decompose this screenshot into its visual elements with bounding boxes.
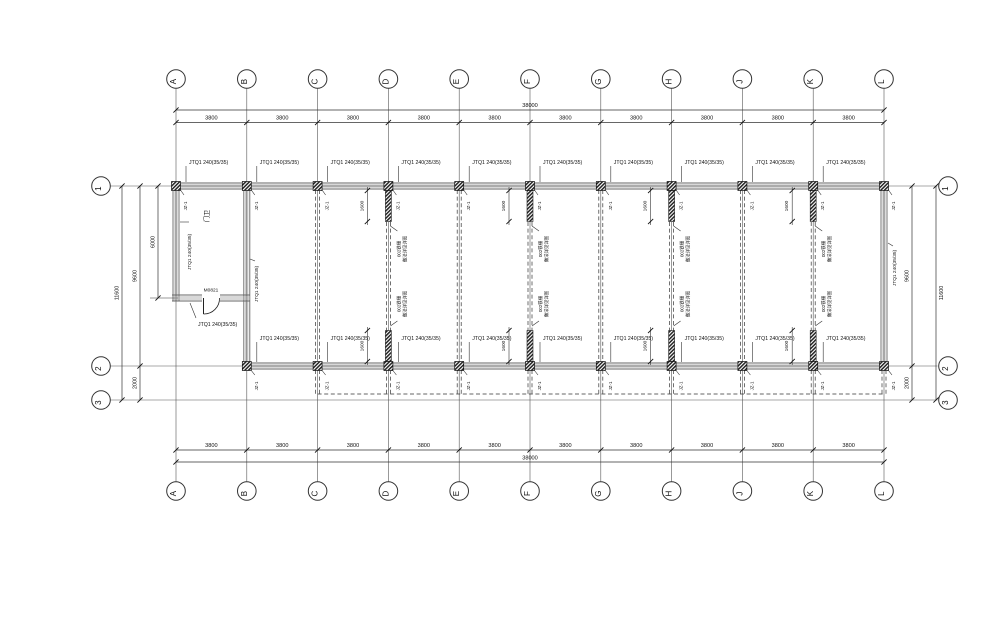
wall-tag-room-left: JTQ1 240(35/35) xyxy=(187,233,193,270)
column-block-row1-C xyxy=(313,182,322,191)
note-leader xyxy=(815,321,822,326)
grille-note-2: 做法详见详图 xyxy=(401,235,408,262)
column-tag-row2: JZ-1 xyxy=(325,381,330,390)
wall-tag-row1: JTQ1 240(35/35) xyxy=(685,160,724,166)
grid-bubble-top-J-circle xyxy=(733,70,752,89)
column-block-row1-J xyxy=(738,182,747,191)
tag-leader xyxy=(464,190,468,195)
tag-leader xyxy=(818,190,822,195)
dim-grille-length: 1600 xyxy=(359,200,365,211)
column-tag-row2: JZ-1 xyxy=(820,381,825,390)
grid-bubble-left-1-circle xyxy=(92,177,111,196)
tag-leader xyxy=(535,371,539,376)
grid-bubble-bottom-F-label: F xyxy=(523,491,532,496)
grid-bubble-bottom-H-label: H xyxy=(665,490,674,496)
column-block-row2-B xyxy=(242,362,251,371)
grid-bubble-bottom-D-label: D xyxy=(381,490,390,496)
tag-leader xyxy=(251,190,255,195)
grid-bubble-bottom-F-circle xyxy=(521,482,540,501)
grille-note-1: 002铁栅 xyxy=(537,295,544,312)
column-block-row2-H xyxy=(667,362,676,371)
grid-bubble-left-2-label: 2 xyxy=(94,366,103,371)
wall-tag-row2: JTQ1 240(35/35) xyxy=(472,336,511,342)
grille-note-1: 002铁栅 xyxy=(395,295,402,312)
grid-bubble-right-2-circle xyxy=(939,357,958,376)
grid-bubble-right-1-label: 1 xyxy=(941,186,950,191)
tag-leader xyxy=(251,371,255,376)
grille-stub-bottom xyxy=(669,331,675,362)
dim-bay-bottom: 3800 xyxy=(772,443,784,449)
grille-stub-top xyxy=(810,191,816,222)
grid-bubble-right-1-circle xyxy=(939,177,958,196)
dim-bay-top: 3800 xyxy=(701,116,713,122)
dim-bay-bottom: 3800 xyxy=(701,443,713,449)
grid-bubble-right-2-label: 2 xyxy=(941,366,950,371)
tag-leader xyxy=(605,190,609,195)
column-block-row1-D xyxy=(384,182,393,191)
room-name: 门卫 xyxy=(203,210,211,222)
wall-tag-row1: JTQ1 240(35/35) xyxy=(401,160,440,166)
grid-bubble-bottom-B-label: B xyxy=(240,491,249,496)
column-tag-row2: JZ-1 xyxy=(395,381,400,390)
tag-leader xyxy=(818,371,822,376)
grille-note-2: 做法详见详图 xyxy=(685,290,692,317)
dim-bay-top: 3800 xyxy=(418,116,430,122)
column-tag-row1: JZ-1 xyxy=(395,201,400,210)
column-tag-row2: JZ-1 xyxy=(254,381,259,390)
grille-note-1: 002铁栅 xyxy=(820,240,827,257)
door-tag: M0821 xyxy=(204,288,219,294)
dim-bay-bottom: 3800 xyxy=(842,443,854,449)
grille-note-2: 做法详见详图 xyxy=(401,290,408,317)
column-block-row2-D xyxy=(384,362,393,371)
tag-leader xyxy=(605,371,609,376)
grid-bubble-right-3-circle xyxy=(939,391,958,410)
column-block-row2-J xyxy=(738,362,747,371)
grid-bubble-top-C-label: C xyxy=(311,78,320,84)
grille-stub-top xyxy=(527,191,533,222)
grid-bubble-top-H-label: H xyxy=(665,78,674,84)
column-block-row1-K xyxy=(809,182,818,191)
floor-plan-canvas: AABBCCDDEEFFGGHHJJKKLL112233380003800380… xyxy=(0,0,992,638)
column-tag-row2: JZ-1 xyxy=(466,381,471,390)
column-tag-row2: JZ-1 xyxy=(679,381,684,390)
grid-bubble-bottom-C-label: C xyxy=(311,490,320,496)
grid-bubble-bottom-K-label: K xyxy=(806,490,815,496)
grille-note-1: 002铁栅 xyxy=(395,240,402,257)
wall-tag-row2: JTQ1 240(35/35) xyxy=(755,336,794,342)
wall-tag-row1: JTQ1 240(35/35) xyxy=(826,160,865,166)
dim-total-width-top: 38000 xyxy=(522,103,538,109)
wall-tag-row1: JTQ1 240(35/35) xyxy=(543,160,582,166)
tag-leader xyxy=(322,190,326,195)
note-leader xyxy=(532,226,539,231)
dim-bay-bottom: 3800 xyxy=(205,443,217,449)
note-leader xyxy=(815,226,822,231)
column-tag-row2: JZ-1 xyxy=(749,381,754,390)
grid-bubble-top-K-label: K xyxy=(806,78,815,84)
tag-leader xyxy=(676,190,680,195)
grille-note-2: 做法详见详图 xyxy=(685,235,692,262)
dim-bay-top: 3800 xyxy=(842,116,854,122)
wall-tag-room-right: JTQ1 240(35/35) xyxy=(254,265,260,302)
column-tag-row1: JZ-1 xyxy=(254,201,259,210)
dim-bay-top: 3800 xyxy=(347,116,359,122)
grid-bubble-left-1-label: 1 xyxy=(94,186,103,191)
column-block-row2-K xyxy=(809,362,818,371)
column-block-row1-G xyxy=(596,182,605,191)
note-leader xyxy=(390,321,397,326)
column-block-row1-E xyxy=(455,182,464,191)
grid-bubble-top-D-label: D xyxy=(381,78,390,84)
dim-bay-top: 3800 xyxy=(205,116,217,122)
grid-bubble-bottom-L-label: L xyxy=(877,491,886,496)
dim-bay-bottom: 3800 xyxy=(559,443,571,449)
dim-bay-bottom: 3800 xyxy=(347,443,359,449)
wall-tag-row2: JTQ1 240(35/35) xyxy=(614,336,653,342)
grid-bubble-bottom-J-label: J xyxy=(735,492,744,496)
grille-note-1: 002铁栅 xyxy=(537,240,544,257)
grid-bubble-top-L-label: L xyxy=(877,79,886,84)
grid-bubble-bottom-G-label: G xyxy=(594,490,603,496)
dim-total-height-right: 11600 xyxy=(939,286,945,301)
tag-leader xyxy=(393,371,397,376)
column-tag-row1: JZ-1 xyxy=(537,201,542,210)
grid-bubble-top-A-label: A xyxy=(169,78,178,84)
grid-bubble-top-J-label: J xyxy=(735,80,744,84)
dim-grille-length: 1600 xyxy=(784,200,790,211)
grid-bubble-top-B-label: B xyxy=(240,79,249,84)
grille-note-2: 做法详见详图 xyxy=(543,290,550,317)
tag-leader xyxy=(393,190,397,195)
wall-tag-row2: JTQ1 240(35/35) xyxy=(331,336,370,342)
tag-leader xyxy=(889,371,893,376)
wall-tag-row2: JTQ1 240(35/35) xyxy=(260,336,299,342)
dim-grille-length: 1600 xyxy=(643,200,649,211)
dim-bay-bottom: 3800 xyxy=(276,443,288,449)
column-tag-row2: JZ-1 xyxy=(608,381,613,390)
wall-tag-row2: JTQ1 240(35/35) xyxy=(543,336,582,342)
tag-leader xyxy=(535,190,539,195)
dim-bay-bottom: 3800 xyxy=(630,443,642,449)
wall-tag-row1: JTQ1 240(35/35) xyxy=(260,160,299,166)
wall-tag-row1: JTQ1 240(35/35) xyxy=(472,160,511,166)
grid-bubble-top-E-label: E xyxy=(452,79,461,84)
column-tag-row1: JZ-1 xyxy=(183,201,188,210)
tag-leader xyxy=(747,371,751,376)
grid-bubble-bottom-L-circle xyxy=(875,482,894,501)
dim-total-width-bottom: 38000 xyxy=(522,456,538,462)
tag-leader xyxy=(250,259,255,261)
wall-tag-row2: JTQ1 240(35/35) xyxy=(401,336,440,342)
dim-bay-bottom: 3800 xyxy=(488,443,500,449)
wall-tag-row2: JTQ1 240(35/35) xyxy=(685,336,724,342)
grille-stub-bottom xyxy=(385,331,391,362)
tag-leader xyxy=(322,371,326,376)
column-block-row2-L xyxy=(880,362,889,371)
column-tag-row1: JZ-1 xyxy=(820,201,825,210)
dim-bay-top: 3800 xyxy=(488,116,500,122)
grille-stub-top xyxy=(385,191,391,222)
column-tag-row2: JZ-1 xyxy=(537,381,542,390)
tag-leader xyxy=(464,371,468,376)
grille-note-1: 002铁栅 xyxy=(679,295,686,312)
grille-stub-bottom xyxy=(527,331,533,362)
wall-tag-row1: JTQ1 240(35/35) xyxy=(755,160,794,166)
door-swing-arc xyxy=(204,298,220,314)
wall-tag-row1: JTQ1 240(35/35) xyxy=(614,160,653,166)
dim-bay-top: 3800 xyxy=(772,116,784,122)
grille-note-2: 做法详见详图 xyxy=(826,290,833,317)
column-tag-row1: JZ-1 xyxy=(749,201,754,210)
grid-bubble-top-L-circle xyxy=(875,70,894,89)
grid-bubble-bottom-E-label: E xyxy=(452,491,461,496)
grille-stub-top xyxy=(669,191,675,222)
tag-leader xyxy=(888,243,893,246)
wall-tag-row1: JTQ1 240(35/35) xyxy=(189,160,228,166)
column-block-row1-L xyxy=(880,182,889,191)
column-tag-row1: JZ-1 xyxy=(891,201,896,210)
column-block-row2-E xyxy=(455,362,464,371)
note-leader xyxy=(674,226,681,231)
grid-bubble-bottom-J-circle xyxy=(733,482,752,501)
dim-2000-right: 2000 xyxy=(905,377,911,389)
column-tag-row1: JZ-1 xyxy=(466,201,471,210)
column-tag-row1: JZ-1 xyxy=(325,201,330,210)
grille-note-1: 002铁栅 xyxy=(679,240,686,257)
column-block-row2-G xyxy=(596,362,605,371)
wall-tag-row2: JTQ1 240(35/35) xyxy=(826,336,865,342)
column-tag-row1: JZ-1 xyxy=(679,201,684,210)
dim-9600-left: 9600 xyxy=(133,270,139,282)
dim-room-depth: 6000 xyxy=(151,236,157,248)
column-tag-row2: JZ-1 xyxy=(891,381,896,390)
grid-bubble-left-2-circle xyxy=(92,357,111,376)
column-block-row1-A xyxy=(172,182,181,191)
grid-bubble-right-3-label: 3 xyxy=(941,400,950,405)
dim-bay-top: 3800 xyxy=(276,116,288,122)
grid-bubble-left-3-circle xyxy=(92,391,111,410)
cad-floor-plan-page: AABBCCDDEEFFGGHHJJKKLL112233380003800380… xyxy=(0,0,992,638)
grille-note-1: 002铁栅 xyxy=(820,295,827,312)
tag-leader xyxy=(889,190,893,195)
column-block-row1-H xyxy=(667,182,676,191)
dim-grille-length: 1600 xyxy=(501,200,507,211)
wall-tag-row1: JTQ1 240(35/35) xyxy=(331,160,370,166)
column-block-row1-F xyxy=(526,182,535,191)
dim-total-height-left: 11600 xyxy=(115,286,121,301)
note-leader xyxy=(674,321,681,326)
column-block-row2-F xyxy=(526,362,535,371)
grid-bubble-left-3-label: 3 xyxy=(94,400,103,405)
column-tag-row1: JZ-1 xyxy=(608,201,613,210)
dim-bay-top: 3800 xyxy=(630,116,642,122)
tag-leader xyxy=(676,371,680,376)
grid-bubble-bottom-A-label: A xyxy=(169,490,178,496)
grille-note-2: 做法详见详图 xyxy=(543,235,550,262)
note-leader xyxy=(390,226,397,231)
tag-leader xyxy=(747,190,751,195)
grid-bubble-top-F-label: F xyxy=(523,79,532,84)
grille-stub-bottom xyxy=(810,331,816,362)
column-block-row2-C xyxy=(313,362,322,371)
tag-leader xyxy=(190,303,196,318)
grid-bubble-top-G-label: G xyxy=(594,78,603,84)
dim-9600-right: 9600 xyxy=(905,270,911,282)
note-leader xyxy=(532,321,539,326)
dim-bay-bottom: 3800 xyxy=(418,443,430,449)
column-block-row1-B xyxy=(242,182,251,191)
wall-tag-room-bottom: JTQ1 240(35/35) xyxy=(198,322,237,328)
tag-leader xyxy=(181,190,185,195)
grid-bubble-top-F-circle xyxy=(521,70,540,89)
grille-note-2: 做法详见详图 xyxy=(826,235,833,262)
dim-bay-top: 3800 xyxy=(559,116,571,122)
dim-2000-left: 2000 xyxy=(133,377,139,389)
wall-tag-right: JTQ1 240(35/35) xyxy=(892,249,898,286)
